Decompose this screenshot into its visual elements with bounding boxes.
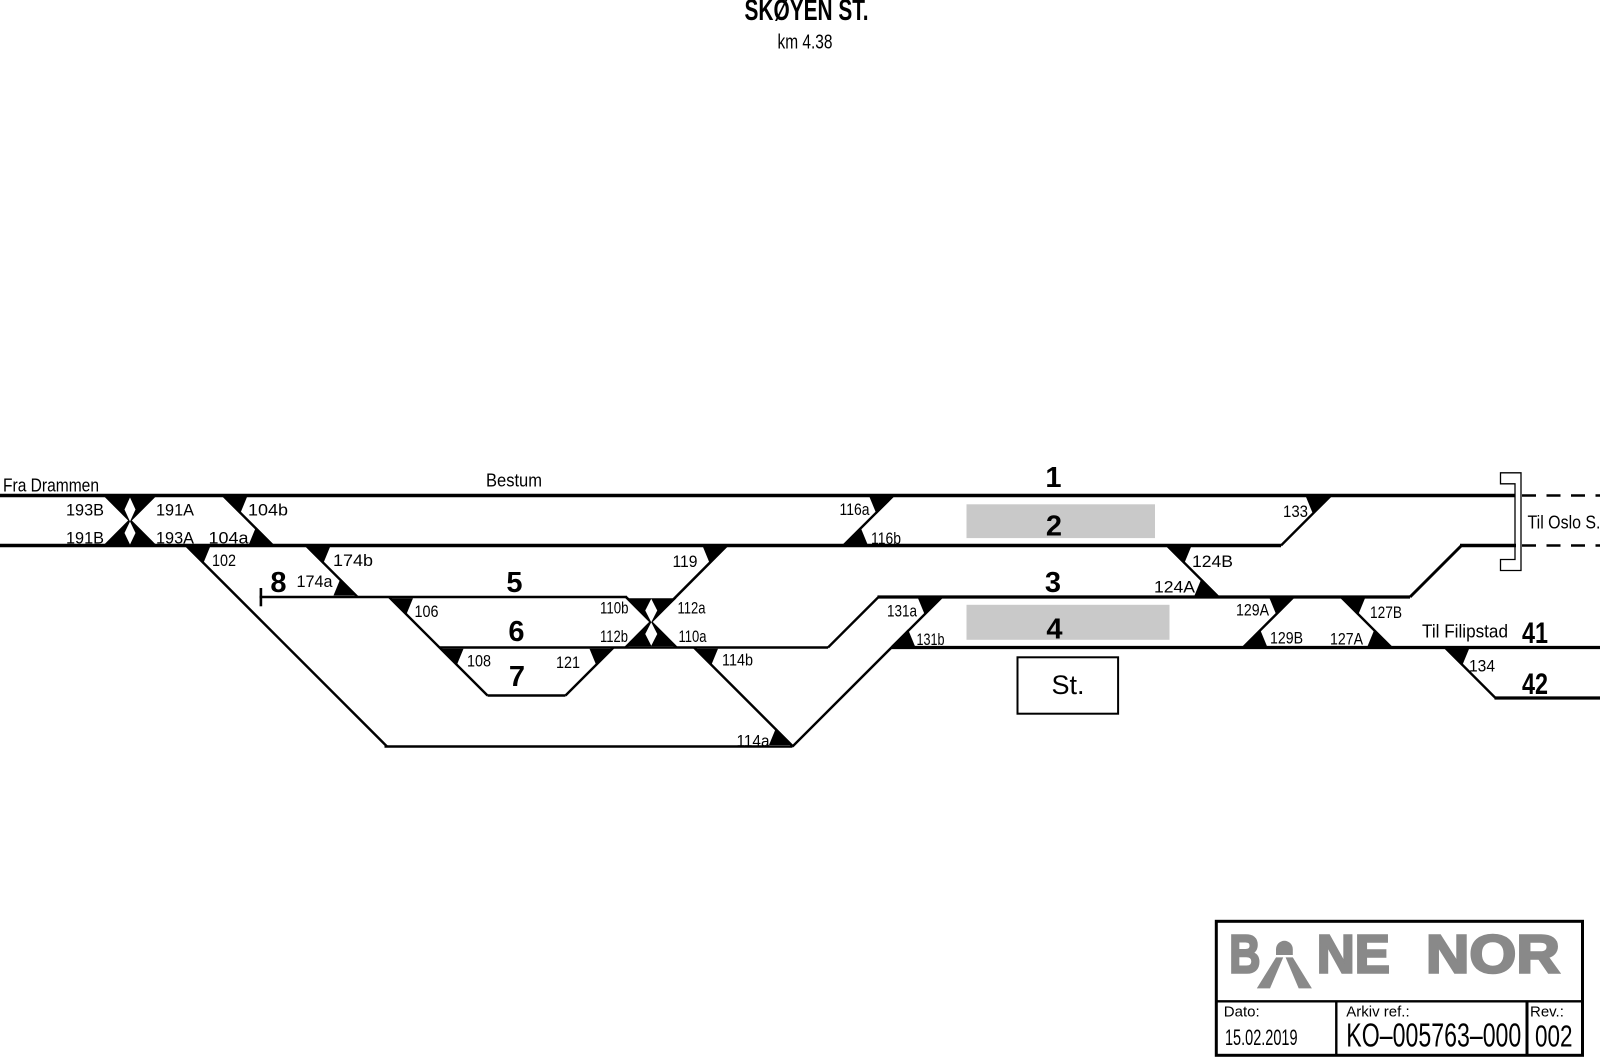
svg-text:8: 8	[270, 567, 286, 599]
svg-text:108: 108	[467, 652, 491, 671]
svg-text:Til Filipstad: Til Filipstad	[1422, 621, 1508, 642]
svg-text:106: 106	[415, 602, 439, 621]
svg-text:41: 41	[1522, 617, 1548, 650]
svg-text:129B: 129B	[1270, 629, 1303, 648]
svg-text:2: 2	[1046, 511, 1062, 543]
svg-text:193A: 193A	[156, 529, 195, 548]
svg-text:Dato:: Dato:	[1224, 1003, 1260, 1020]
svg-text:131b: 131b	[917, 630, 945, 649]
svg-text:002: 002	[1535, 1019, 1573, 1054]
svg-text:129A: 129A	[1236, 601, 1270, 620]
svg-text:KO–005763–000: KO–005763–000	[1346, 1017, 1521, 1054]
svg-text:124A: 124A	[1154, 578, 1196, 597]
svg-text:191A: 191A	[156, 501, 195, 520]
svg-text:15.02.2019: 15.02.2019	[1225, 1025, 1298, 1050]
svg-text:42: 42	[1522, 668, 1548, 701]
svg-text:127B: 127B	[1370, 603, 1402, 622]
svg-text:193B: 193B	[66, 501, 104, 520]
svg-text:Til Oslo S.: Til Oslo S.	[1528, 513, 1600, 533]
svg-text:121: 121	[556, 653, 580, 672]
svg-text:124B: 124B	[1192, 552, 1233, 571]
svg-text:127A: 127A	[1330, 630, 1364, 649]
svg-text:119: 119	[673, 552, 698, 571]
svg-text:7: 7	[509, 661, 525, 693]
svg-text:3: 3	[1045, 567, 1061, 599]
svg-text:174a: 174a	[297, 572, 334, 591]
svg-text:174b: 174b	[333, 551, 373, 570]
svg-text:104b: 104b	[248, 501, 288, 520]
svg-text:6: 6	[508, 616, 524, 648]
svg-text:104a: 104a	[209, 529, 250, 548]
svg-text:131a: 131a	[887, 602, 917, 621]
svg-text:191B: 191B	[66, 529, 104, 548]
svg-text:4: 4	[1046, 614, 1062, 646]
svg-text:B: B	[1229, 925, 1260, 984]
svg-text:114b: 114b	[722, 651, 753, 670]
svg-text:Fra Drammen: Fra Drammen	[3, 475, 99, 496]
svg-text:112b: 112b	[600, 627, 628, 646]
svg-text:112a: 112a	[678, 599, 706, 618]
svg-text:Bestum: Bestum	[486, 470, 542, 491]
svg-text:133: 133	[1283, 502, 1308, 521]
svg-text:NOR: NOR	[1426, 925, 1560, 984]
svg-text:1: 1	[1045, 462, 1061, 494]
svg-text:134: 134	[1469, 657, 1495, 676]
svg-text:116a: 116a	[840, 500, 870, 519]
svg-text:SKØYEN ST.: SKØYEN ST.	[745, 0, 869, 27]
svg-text:NE: NE	[1317, 925, 1390, 984]
svg-text:102: 102	[212, 551, 236, 570]
svg-text:110a: 110a	[679, 627, 707, 646]
svg-text:5: 5	[506, 567, 522, 599]
svg-text:114a: 114a	[737, 732, 770, 751]
svg-text:116b: 116b	[871, 529, 901, 548]
svg-text:km 4.38: km 4.38	[778, 32, 833, 54]
svg-text:110b: 110b	[600, 599, 629, 618]
svg-text:St.: St.	[1052, 670, 1085, 700]
